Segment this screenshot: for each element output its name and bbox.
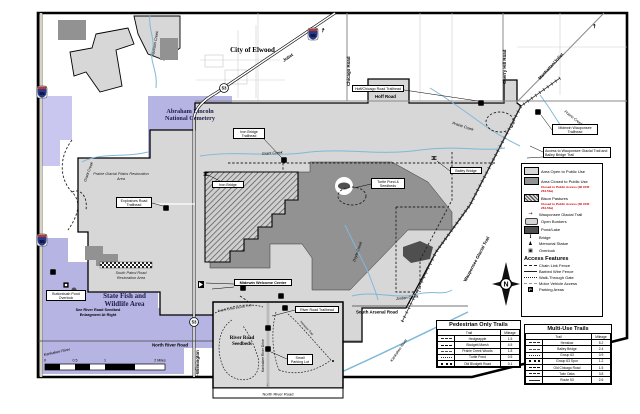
multiuse-table-title: Multi-Use Trails: [525, 325, 611, 333]
legend-item-pond-lake: Pond/Lake: [524, 226, 600, 234]
closed-area-swatch: [524, 177, 539, 185]
iron-bridge-trailhead-callout: Iron Bridge Trailhead: [233, 128, 265, 139]
explosives-road-trailhead-callout: Explosives Road Trailhead: [116, 197, 152, 208]
statue-icon: ♟: [524, 241, 537, 247]
midewin-welcome-center-callout: Midewin Welcome Center: [234, 279, 292, 286]
wauponsee-access-callout: Access to Wauponsee Glacial Trail and Ba…: [543, 147, 611, 158]
area-closed-northwest: [58, 20, 86, 40]
iron-bridge-callout: Iron Bridge: [212, 181, 244, 188]
motor-vehicle-access-icon: [524, 283, 537, 284]
city-of-elwood-label: City of Elwood: [210, 46, 295, 54]
turtle-pond-seedbeds-callout: Turtle Pond & Seedbeds: [371, 178, 405, 189]
cherry-hill-road-label: Cherry Hill Road: [502, 49, 507, 84]
walk-through-gate-icon: [524, 277, 537, 278]
river-road-trailhead-callout: River Road Trailhead: [295, 306, 339, 313]
scale-2miles: 2 Miles: [154, 359, 166, 363]
inset-north-river-road-label: North River Road: [263, 392, 294, 397]
north-label: N: [503, 282, 508, 289]
legend-item-bridge: I Bridge: [524, 235, 600, 240]
hoff-chicago-trailhead-callout: Hoff/Chicago Road Trailhead: [352, 85, 404, 92]
inset-arrow-down-icon: ↓: [266, 382, 269, 388]
legend-item-area-open: Area Open to Public Use: [524, 167, 600, 175]
multiuse-trails-table: Multi-Use Trails Trail Mileage Henslow5.…: [524, 324, 612, 385]
bison-pasture-note: Closed to Public Access (36 CFR 261.53e): [541, 203, 597, 210]
midewin-wauponsee-trailhead-callout: Midewin Wauponsee Trailhead: [552, 124, 598, 135]
prairie-glacial-plains-label: Prairie Glacial Plains Restoration Area: [92, 172, 150, 181]
legend-item-motor-access: Motor Vehicle Access: [524, 281, 600, 286]
legend-item-walk-gate: Walk-Through Gate: [524, 275, 600, 280]
parking-legend-icon: P: [528, 287, 533, 292]
closed-area-note: Closed to Public Access (36 CFR 261.53e): [541, 186, 597, 193]
area-closed-north: [160, 38, 178, 60]
pedestrian-trails-table: Pedestrian Only Trails Trail Mileage Hed…: [436, 320, 521, 368]
bailey-bridge-callout: Bailey Bridge: [450, 167, 482, 174]
small-parking-lot-callout: Small Parking Lot: [287, 354, 313, 365]
access-features-title: Access Features: [524, 256, 600, 262]
legend-item-open-bunkers: Open Bunkers: [524, 218, 600, 225]
legend-item-bison-pastures: Bison Pastures Closed to Public Access (…: [524, 193, 600, 210]
wilmington-arrow-down-icon: ↓: [197, 372, 200, 378]
barbed-wire-fence-icon: [524, 271, 537, 272]
table-row: Old Blodgett Road0.1: [438, 360, 520, 366]
bridge-glyph-icon: I: [524, 235, 537, 240]
open-bunkers-strip: [100, 262, 152, 268]
pedestrian-table-title: Pedestrian Only Trails: [437, 321, 520, 329]
cemetery-label: Abraham Lincoln National Cemetery: [146, 108, 234, 122]
buttonbush-pond-overlook-callout: Buttonbush Pond Overlook: [46, 290, 86, 301]
scale-1: 1: [104, 359, 106, 363]
legend-item-overlook: ▣ Overlook: [524, 248, 600, 254]
north-river-road-label: North River Road: [152, 343, 188, 348]
legend-item-area-closed: Area Closed to Public Use Closed to Publ…: [524, 176, 600, 193]
wilmington-label: Wilmington: [195, 350, 200, 374]
midewin-trail-map: P 55 53: [0, 0, 640, 414]
south-patrol-road-label: South Patrol Road Restoration Area: [106, 271, 156, 280]
legend: Area Open to Public Use Area Closed to P…: [521, 163, 603, 317]
trail-arrow-icon: →: [524, 211, 537, 217]
overlook-glyph-icon: ▣: [524, 248, 537, 254]
chicago-road-label: Chicago Road: [346, 56, 351, 86]
bison-pasture-swatch: [524, 194, 539, 202]
legend-item-memorial-statue: ♟ Memorial Statue: [524, 241, 600, 247]
scale-0: 0: [44, 359, 46, 363]
see-river-road-note: See River Road Seedbed Enlargment At Rig…: [70, 308, 126, 317]
river-road-seedbeds-label: River Road Seedbeds: [220, 336, 264, 348]
legend-item-chain-link: Chain Link Fence: [524, 263, 600, 268]
buttonbush-overlook-symbol: [63, 282, 68, 287]
scale-05: 0.5: [73, 359, 78, 363]
chain-link-fence-icon: [524, 265, 537, 266]
legend-item-barbed-wire: Barbed Wire Fence: [524, 269, 600, 274]
pond-swatch: [524, 226, 539, 234]
legend-item-parking: P Parking Areas: [524, 287, 600, 292]
hoff-road-label: Hoff Road: [375, 94, 396, 99]
state-fish-wildlife-label: State Fish and Wildlife Area: [82, 292, 167, 308]
river-road-seedbeds-inset: [213, 302, 343, 398]
bunker-icon: [525, 218, 538, 225]
legend-item-wauponsee: → Wauponsee Glacial Trail: [524, 211, 600, 217]
table-row: Route 532.6: [526, 377, 611, 383]
open-area-swatch: [524, 167, 539, 175]
south-arsenal-road-label: South Arsenal Road: [356, 310, 398, 315]
